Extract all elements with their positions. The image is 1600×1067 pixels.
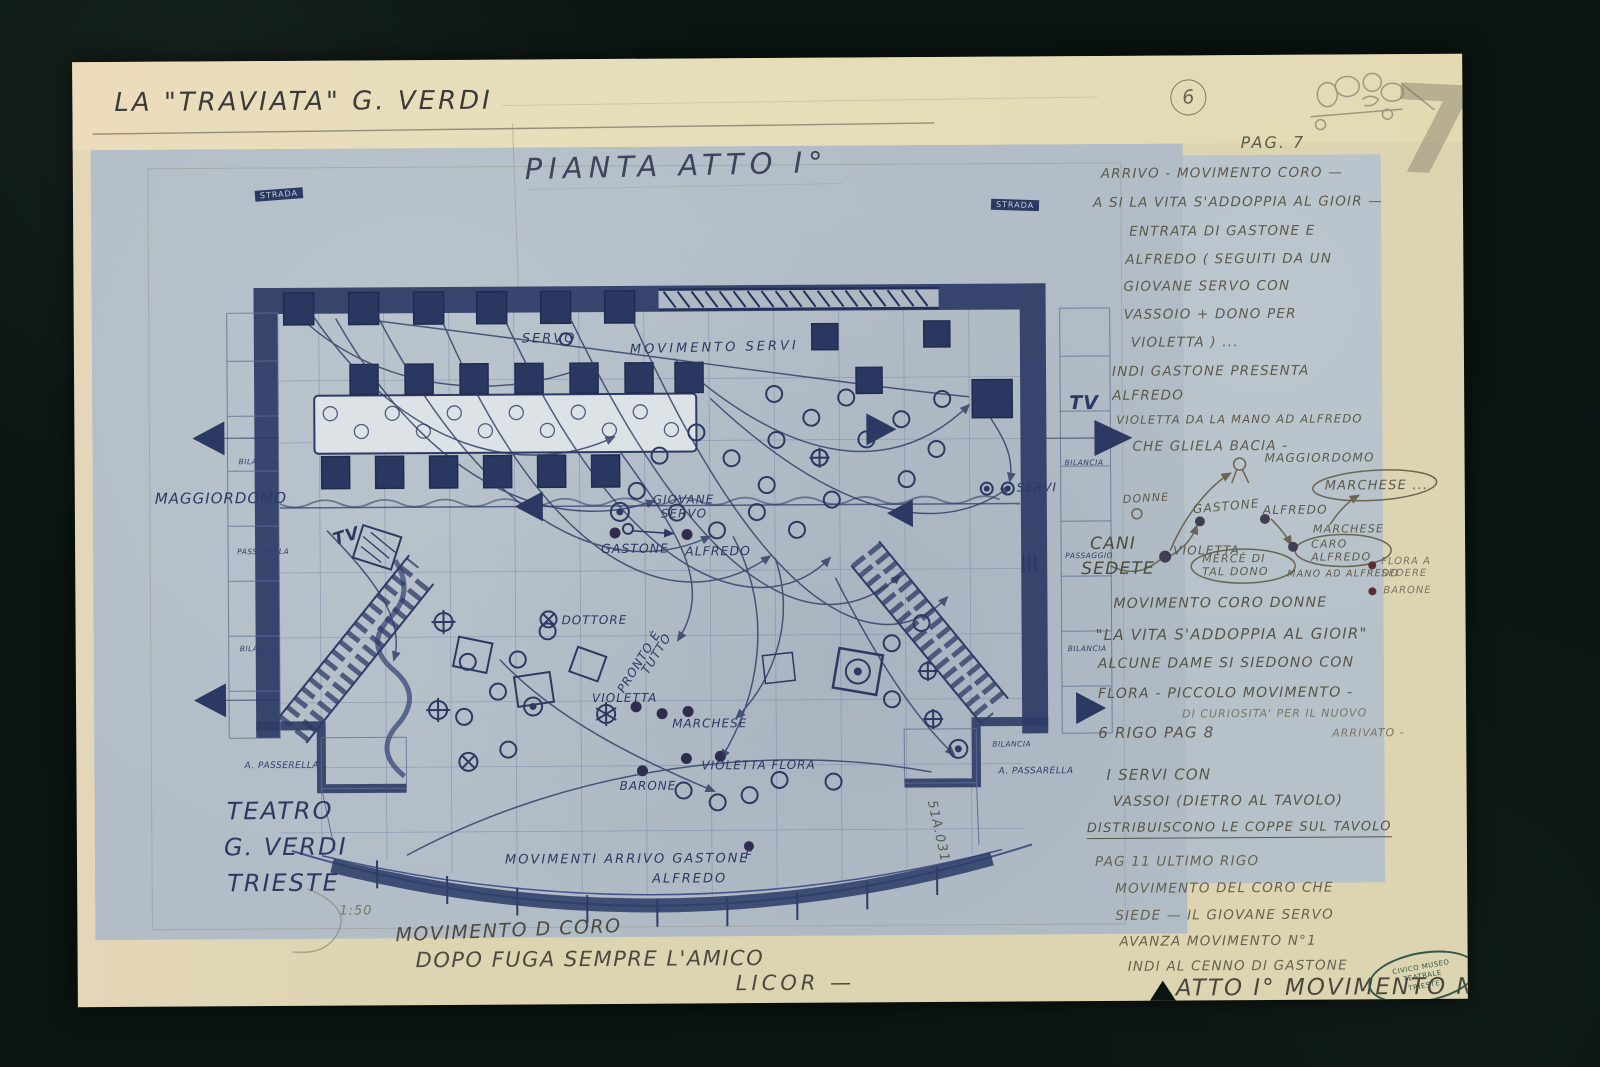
mini-caro-alfredo: CARO ALFREDO	[1311, 538, 1383, 564]
alfredo2-label: ALFREDO	[652, 871, 727, 886]
mini-donne: DONNE	[1122, 490, 1169, 506]
teatro-label: TEATRO	[227, 797, 334, 826]
pag-label: PAG. 7	[1241, 133, 1306, 152]
mini-alfredo: ALFREDO	[1263, 503, 1328, 517]
tv-label-right: TV	[1069, 392, 1099, 414]
maggiordomo-label: MAGGIORDOMO	[155, 489, 287, 508]
movimenti-arrivo-label: MOVIMENTI ARRIVO GASTONE	[505, 851, 750, 867]
note-line: GIOVANE SERVO CON	[1123, 278, 1290, 295]
note-line: FLORA - PICCOLO MOVIMENTO -	[1098, 684, 1353, 702]
bilancia-left-1: BILANCIA	[239, 457, 278, 466]
note-line: VIOLETTA DA LA MANO AD ALFREDO	[1116, 411, 1362, 427]
a-passerella-left: A. PASSERELLA	[244, 761, 319, 771]
note-line: ARRIVO - MOVIMENTO CORO —	[1101, 164, 1343, 181]
note-line: "LA VITA S'ADDOPPIA AL GIOIR"	[1096, 624, 1368, 644]
note-line: AVANZA MOVIMENTO N°1	[1119, 933, 1316, 950]
passarella-left: PASSARELLA	[237, 547, 289, 556]
note-line: MOVIMENTO CORO DONNE	[1113, 595, 1327, 612]
mini-marchese: MARCHESE	[1313, 522, 1384, 535]
note-line: VASSOIO + DONO PER	[1124, 306, 1297, 323]
note-line: ALFREDO	[1112, 387, 1184, 403]
paper-tear	[1150, 981, 1176, 1001]
alfredo-label: ALFREDO	[685, 543, 751, 558]
gastone-label: GASTONE	[601, 541, 669, 556]
dottore-label: DOTTORE	[562, 613, 628, 627]
barone-label: BARONE	[620, 779, 677, 793]
movimento-coro-line2: DOPO FUGA SEMPRE L'AMICO	[416, 946, 765, 972]
note-line: VIOLETTA ) ...	[1131, 334, 1239, 351]
marchese-label: MARCHESE	[672, 716, 747, 730]
servo-label: SERVO	[522, 331, 577, 346]
bilancia-right-3: BILANCIA	[992, 739, 1031, 748]
note-line: DI CURIOSITA' PER IL NUOVO	[1182, 706, 1367, 720]
scale-label: 1:50	[339, 903, 372, 918]
servi-label: SERVI	[1017, 480, 1057, 494]
movimento-coro-line3: LICOR —	[736, 970, 856, 995]
note-line: INDI GASTONE PRESENTA	[1112, 363, 1310, 380]
mini-marchese-bubble: MARCHESE ...	[1325, 478, 1429, 494]
note-line: DISTRIBUISCONO LE COPPE SUL TAVOLO	[1087, 819, 1392, 839]
a-passarella-right: A. PASSARELLA	[998, 766, 1073, 776]
note-line: A SI LA VITA S'ADDOPPIA AL GIOIR —	[1093, 193, 1383, 211]
page-number-large: 7	[1388, 68, 1468, 194]
note-line: PAG 11 ULTIMO RIGO	[1095, 853, 1259, 870]
note-line: ALCUNE DAME SI SIEDONO CON	[1098, 654, 1355, 672]
document-title: LA "TRAVIATA" G. VERDI	[114, 86, 493, 118]
giovane-label: GIOVANE	[653, 492, 715, 506]
mini-merce: MERCÉ DI TAL DONO	[1202, 553, 1274, 579]
mini-barone: BARONE	[1383, 585, 1431, 596]
bilancia-left-2: BILANCIA	[240, 644, 279, 653]
mini-flora: FLORA A SEDERE	[1381, 556, 1439, 579]
passaggio-right: PASSAGGIO	[1065, 551, 1113, 560]
scanned-stage-plan: LA "TRAVIATA" G. VERDI PIANTA ATTO I° 6 …	[0, 0, 1600, 1067]
bilancia-right-2: BILANCIA	[1068, 644, 1107, 653]
note-line: ARRIVATO -	[1332, 726, 1404, 739]
strada-label-right: STRADA	[991, 199, 1039, 211]
mini-maggiordomo: MAGGIORDOMO	[1265, 450, 1375, 465]
note-line: I SERVI CON	[1106, 765, 1211, 784]
note-line: 6 RIGO PAG 8	[1098, 723, 1214, 742]
violetta-label: VIOLETTA	[592, 691, 657, 705]
note-line: ENTRATA DI GASTONE E	[1129, 223, 1315, 240]
mini-sedete: SEDETE	[1081, 559, 1155, 579]
note-line: INDI AL CENNO DI GASTONE	[1128, 957, 1348, 974]
bilancia-right-1: BILANCIA	[1065, 458, 1104, 467]
note-line: SIEDE — IL GIOVANE SERVO	[1115, 907, 1334, 924]
gverdi-label: G. VERDI	[224, 833, 348, 862]
violetta-flora-label: VIOLETTA FLORA	[701, 758, 815, 773]
trieste-label: TRIESTE	[227, 869, 340, 898]
plan-title: PIANTA ATTO I°	[524, 145, 829, 186]
note-line: MOVIMENTO DEL CORO CHE	[1115, 880, 1334, 897]
paper-sheet: LA "TRAVIATA" G. VERDI PIANTA ATTO I° 6 …	[72, 54, 1468, 1007]
note-line: VASSOI (DIETRO AL TAVOLO)	[1113, 793, 1344, 810]
servo2-label: SERVO	[661, 506, 707, 520]
note-line: ALFREDO ( SEGUITI DA UN	[1125, 251, 1332, 268]
